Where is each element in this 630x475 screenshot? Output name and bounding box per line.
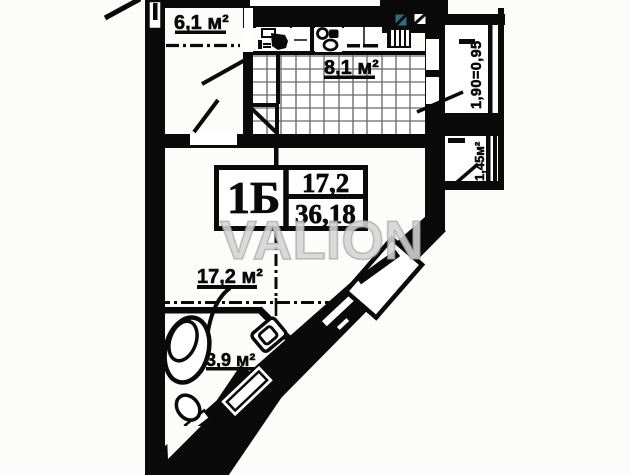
svg-text:17,2: 17,2 — [302, 168, 349, 198]
svg-text:1,90=0,95: 1,90=0,95 — [469, 40, 485, 109]
svg-text:VALION: VALION — [220, 209, 424, 271]
svg-text:1,45м²: 1,45м² — [472, 141, 487, 181]
